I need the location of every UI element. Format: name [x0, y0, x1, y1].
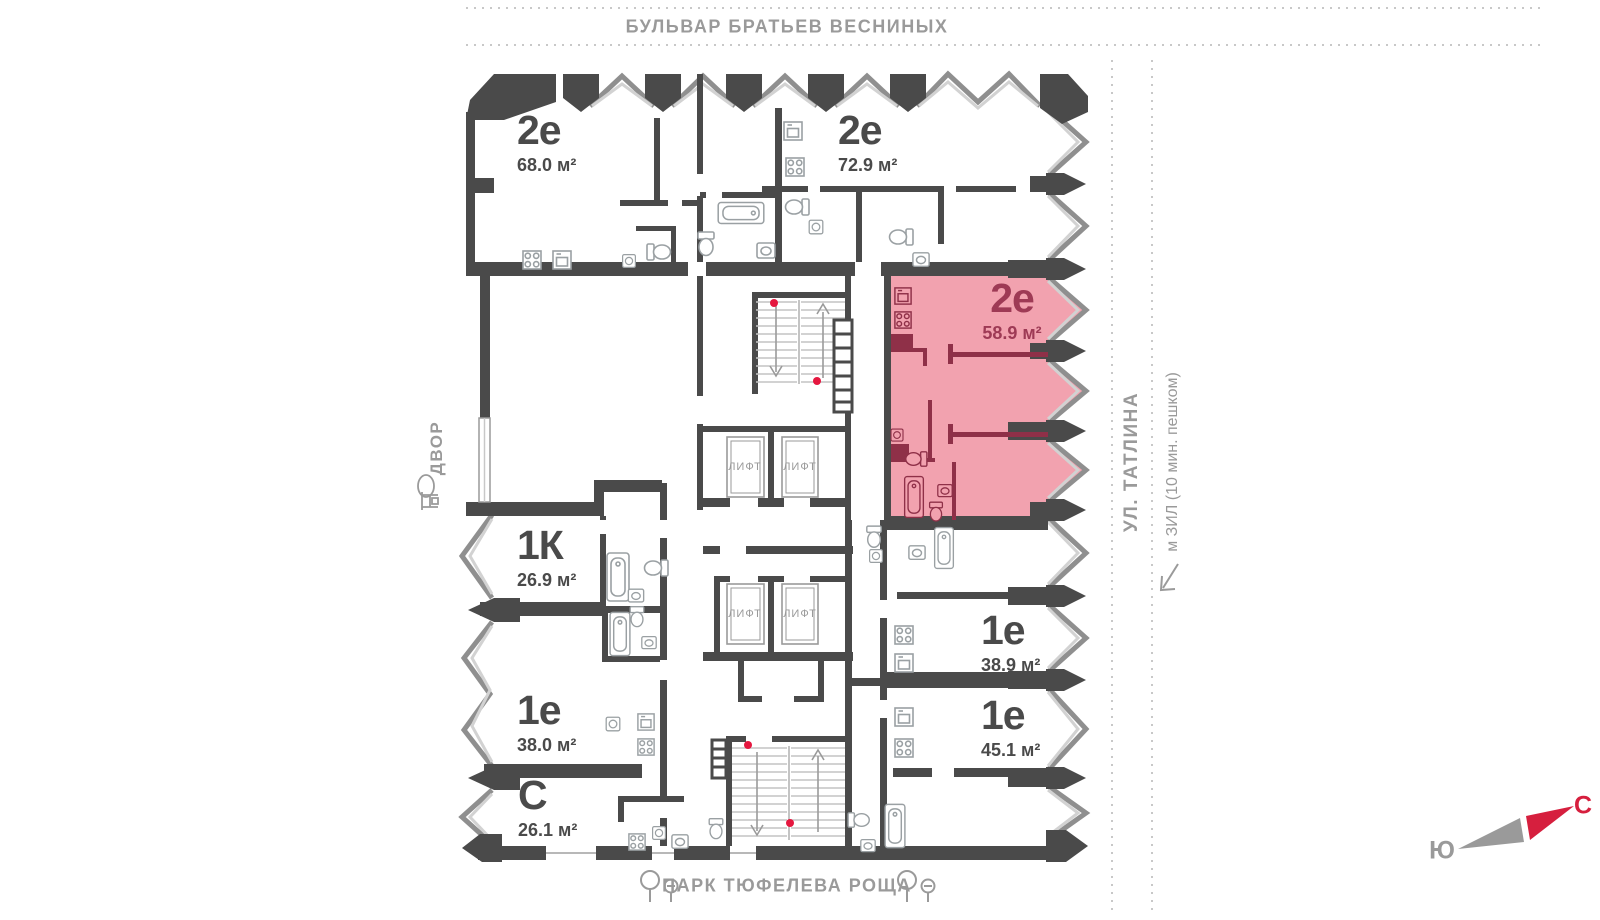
- unit-label-1e-45[interactable]: 1е 45.1 м²: [981, 695, 1040, 759]
- floorplan-page: БУЛЬВАР БРАТЬЕВ ВЕСНИНЫХ ПАРК ТЮФЕЛЕВА Р…: [0, 0, 1600, 920]
- floorplan-svg: [0, 0, 1600, 920]
- metro-walk-arrow: [1161, 564, 1178, 590]
- unit-area: 26.9 м²: [517, 571, 576, 589]
- street-label-bottom: ПАРК ТЮФЕЛЕВА РОЩА: [662, 876, 912, 897]
- unit-type: 1К: [517, 525, 576, 566]
- elevator-label: ЛИФТ: [783, 461, 817, 473]
- compass: [1458, 806, 1574, 849]
- elevator-label: ЛИФТ: [728, 461, 762, 473]
- compass-north-needle: [1526, 806, 1574, 840]
- stairs-upper: [756, 299, 852, 412]
- compass-north-label: С: [1574, 792, 1592, 821]
- courtyard-icon: [418, 475, 438, 510]
- unit-area: 38.0 м²: [517, 736, 576, 754]
- street-label-tatlina: УЛ. ТАТЛИНА: [1121, 392, 1143, 532]
- unit-type: С: [518, 775, 577, 816]
- unit-type: 1е: [517, 690, 576, 731]
- unit-area: 45.1 м²: [981, 741, 1040, 759]
- unit-area: 38.9 м²: [981, 656, 1040, 674]
- unit-type: 2е: [962, 278, 1062, 319]
- elevator-label: ЛИФТ: [728, 608, 762, 620]
- unit-area: 72.9 м²: [838, 156, 897, 174]
- unit-type: 1е: [981, 695, 1040, 736]
- metro-note-label: м ЗИЛ (10 мин. пешком): [1164, 372, 1182, 552]
- unit-label-2e-68[interactable]: 2е 68.0 м²: [517, 110, 576, 174]
- unit-type: 1е: [981, 610, 1040, 651]
- unit-type: 2е: [517, 110, 576, 151]
- unit-area: 68.0 м²: [517, 156, 576, 174]
- compass-south-needle: [1458, 818, 1524, 849]
- unit-label-2e-72[interactable]: 2е 72.9 м²: [838, 110, 897, 174]
- compass-south-label: Ю: [1429, 837, 1455, 866]
- unit-label-1e-38-0[interactable]: 1е 38.0 м²: [517, 690, 576, 754]
- street-label-dvor: ДВОР: [427, 421, 447, 476]
- street-label-top: БУЛЬВАР БРАТЬЕВ ВЕСНИНЫХ: [626, 17, 949, 38]
- unit-label-2e-58-selected[interactable]: 2е 58.9 м²: [962, 278, 1062, 342]
- unit-label-1e-38-9[interactable]: 1е 38.9 м²: [981, 610, 1040, 674]
- unit-label-1k-26[interactable]: 1К 26.9 м²: [517, 525, 576, 589]
- unit-label-c-26[interactable]: С 26.1 м²: [518, 775, 577, 839]
- unit-area: 58.9 м²: [962, 324, 1062, 342]
- unit-area: 26.1 м²: [518, 821, 577, 839]
- unit-type: 2е: [838, 110, 897, 151]
- elevator-label: ЛИФТ: [783, 608, 817, 620]
